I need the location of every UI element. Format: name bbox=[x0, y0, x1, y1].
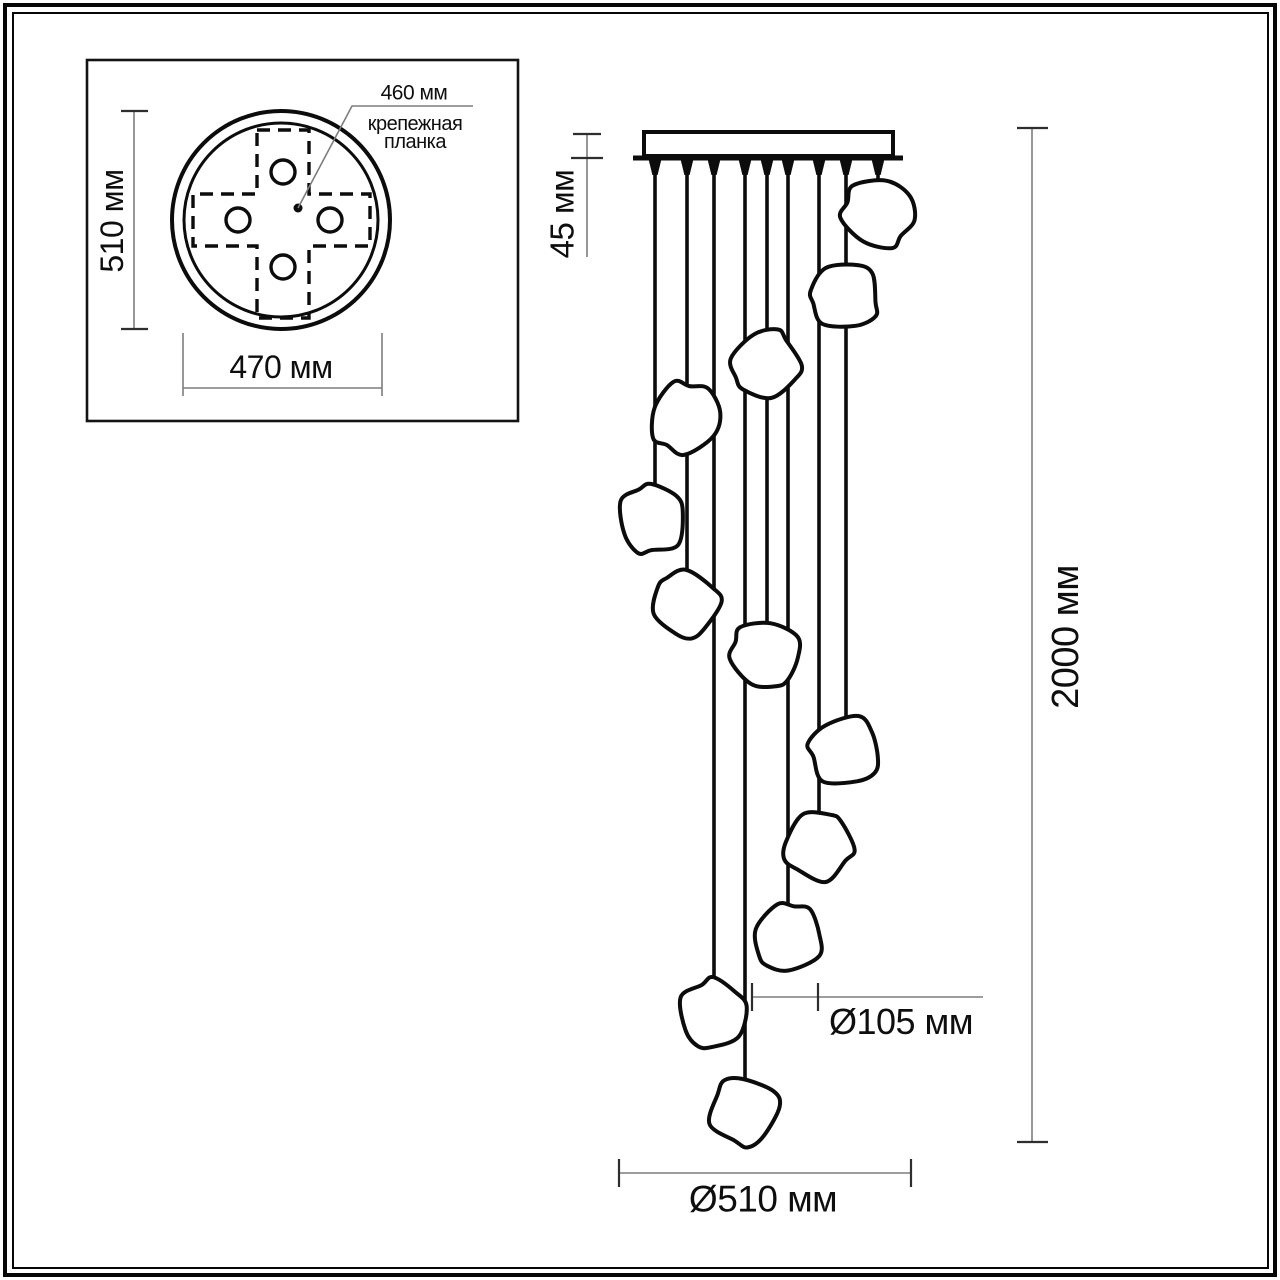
shade bbox=[783, 812, 855, 882]
cord-grip bbox=[782, 159, 795, 175]
cord-grip bbox=[813, 159, 826, 175]
dim-label-510mm-diameter: Ø510 мм bbox=[689, 1181, 837, 1218]
dim-label-2000mm: 2000 мм bbox=[1047, 565, 1085, 709]
canopy-inner-circle bbox=[184, 123, 378, 317]
shade bbox=[652, 381, 721, 455]
dim-label-470mm: 470 мм bbox=[229, 351, 332, 383]
dim-label-45mm: 45 мм bbox=[546, 170, 579, 259]
mount-hole-right bbox=[318, 208, 342, 232]
cord-grip bbox=[761, 159, 774, 175]
cord-grip bbox=[840, 159, 853, 175]
shade bbox=[729, 623, 800, 687]
shade bbox=[653, 570, 722, 639]
chandelier-technical-drawing bbox=[0, 0, 1280, 1280]
cord-grip bbox=[739, 159, 752, 175]
dim-label-460mm: 460 мм bbox=[381, 83, 448, 104]
mount-hole-bottom bbox=[271, 255, 295, 279]
shade bbox=[620, 484, 683, 554]
mounting-bar-label-line2: планка bbox=[384, 132, 446, 152]
mount-hole-top bbox=[271, 160, 295, 184]
cord-grip bbox=[708, 159, 721, 175]
mounting-bar-cross-dashed bbox=[193, 130, 370, 318]
canopy-outer-circle bbox=[172, 111, 390, 329]
ceiling-plate bbox=[644, 132, 893, 156]
shade bbox=[680, 977, 747, 1048]
dim-label-105mm-diameter: Ø105 мм bbox=[829, 1004, 973, 1040]
cord-grip bbox=[649, 159, 662, 175]
dim-label-510mm-top-view: 510 мм bbox=[96, 169, 128, 272]
shade bbox=[709, 1078, 780, 1148]
cord-grip bbox=[872, 159, 885, 175]
shade bbox=[755, 903, 822, 971]
cord-grip bbox=[681, 159, 694, 175]
shade bbox=[840, 180, 915, 248]
mount-hole-left bbox=[226, 208, 250, 232]
shade bbox=[730, 329, 802, 398]
shade bbox=[810, 265, 877, 327]
